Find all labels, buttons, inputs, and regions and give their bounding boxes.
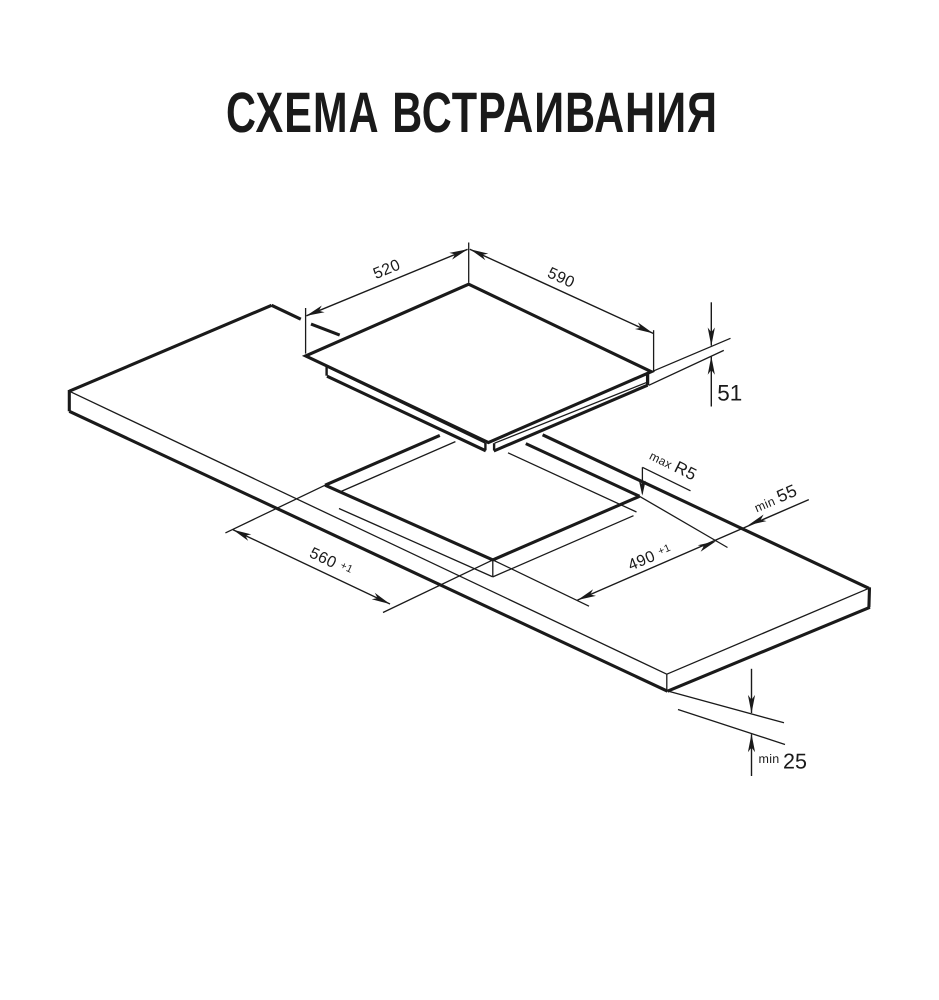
svg-text:СХЕМА ВСТРАИВАНИЯ: СХЕМА ВСТРАИВАНИЯ <box>226 81 718 145</box>
svg-text:min: min <box>759 752 780 766</box>
svg-text:25: 25 <box>783 750 807 774</box>
svg-text:51: 51 <box>717 381 742 406</box>
